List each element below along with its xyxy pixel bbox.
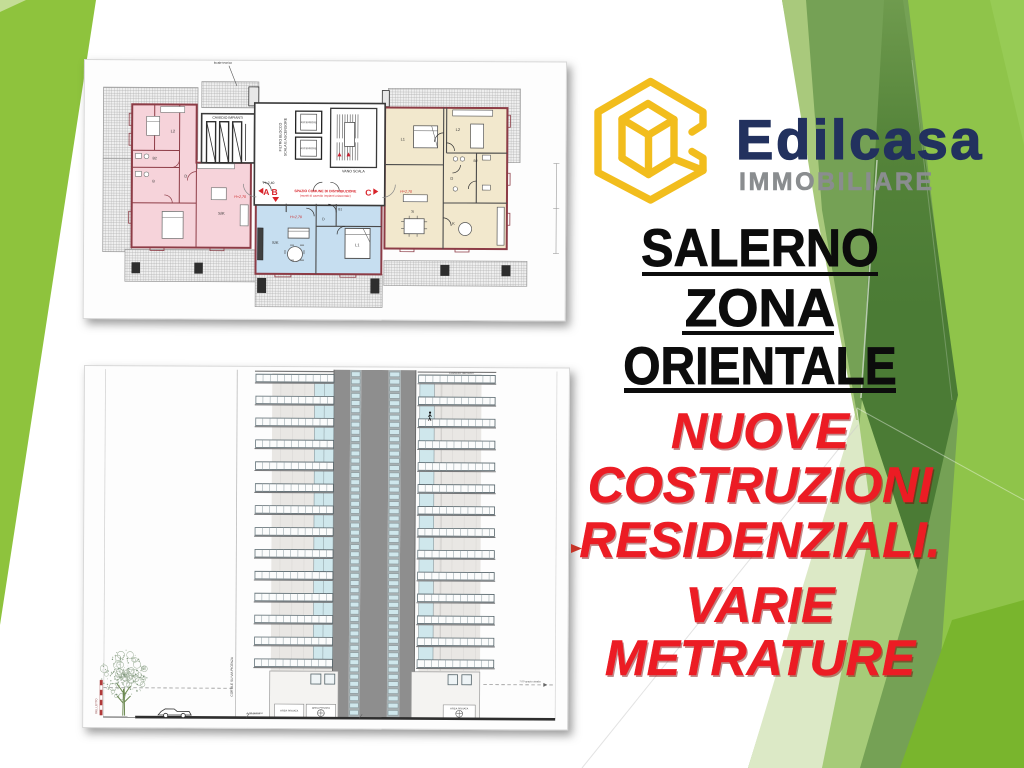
svg-text:AREA PRIVATA: AREA PRIVATA — [280, 709, 298, 713]
svg-text:B2: B2 — [473, 159, 477, 163]
svg-text:H=2,70: H=2,70 — [400, 190, 412, 194]
svg-text:D: D — [184, 174, 187, 179]
svg-text:AREA PRIVATA: AREA PRIVATA — [312, 706, 330, 710]
svg-text:CORTILE SU VIA PICENZA: CORTILE SU VIA PICENZA — [230, 656, 234, 697]
svg-text:H=2,40: H=2,40 — [263, 181, 274, 185]
svg-text:S: S — [411, 209, 414, 214]
svg-text:H=2,70: H=2,70 — [234, 195, 246, 199]
svg-text:S/K: S/K — [272, 240, 279, 245]
svg-text:(muniti di cavedio impianti or: (muniti di cavedio impianti orizzontale) — [300, 194, 351, 198]
svg-text:CAVEDIO IMPIANTI: CAVEDIO IMPIANTI — [449, 371, 475, 375]
svg-text:locale tecnico: locale tecnico — [214, 61, 233, 65]
svg-text:CAVEDIO IMPIANTI: CAVEDIO IMPIANTI — [212, 116, 243, 120]
svg-text:DEL LOTTO: DEL LOTTO — [94, 698, 98, 714]
svg-text:D: D — [322, 217, 325, 221]
svg-text:C: C — [365, 187, 371, 197]
svg-text:B1: B1 — [338, 207, 342, 211]
svg-text:1.50 percorso: 1.50 percorso — [247, 711, 263, 715]
svg-text:S/K: S/K — [218, 211, 225, 216]
svg-text:ASCENSORE: ASCENSORE — [301, 120, 318, 124]
svg-text:ASCENSORE: ASCENSORE — [300, 146, 317, 150]
svg-text:AREA PRIVATA: AREA PRIVATA — [450, 706, 468, 710]
svg-text:B2: B2 — [152, 156, 156, 160]
svg-text:A B: A B — [263, 187, 277, 197]
svg-text:D: D — [450, 176, 453, 181]
svg-text:H=2,70: H=2,70 — [290, 215, 302, 219]
svg-text:VANO SCALA: VANO SCALA — [342, 169, 365, 173]
svg-text:SCALA E ASCENSORE: SCALA E ASCENSORE — [283, 117, 287, 156]
svg-text:FILTRO BLOCCO: FILTRO BLOCCO — [279, 122, 283, 151]
svg-text:K: K — [452, 221, 455, 226]
